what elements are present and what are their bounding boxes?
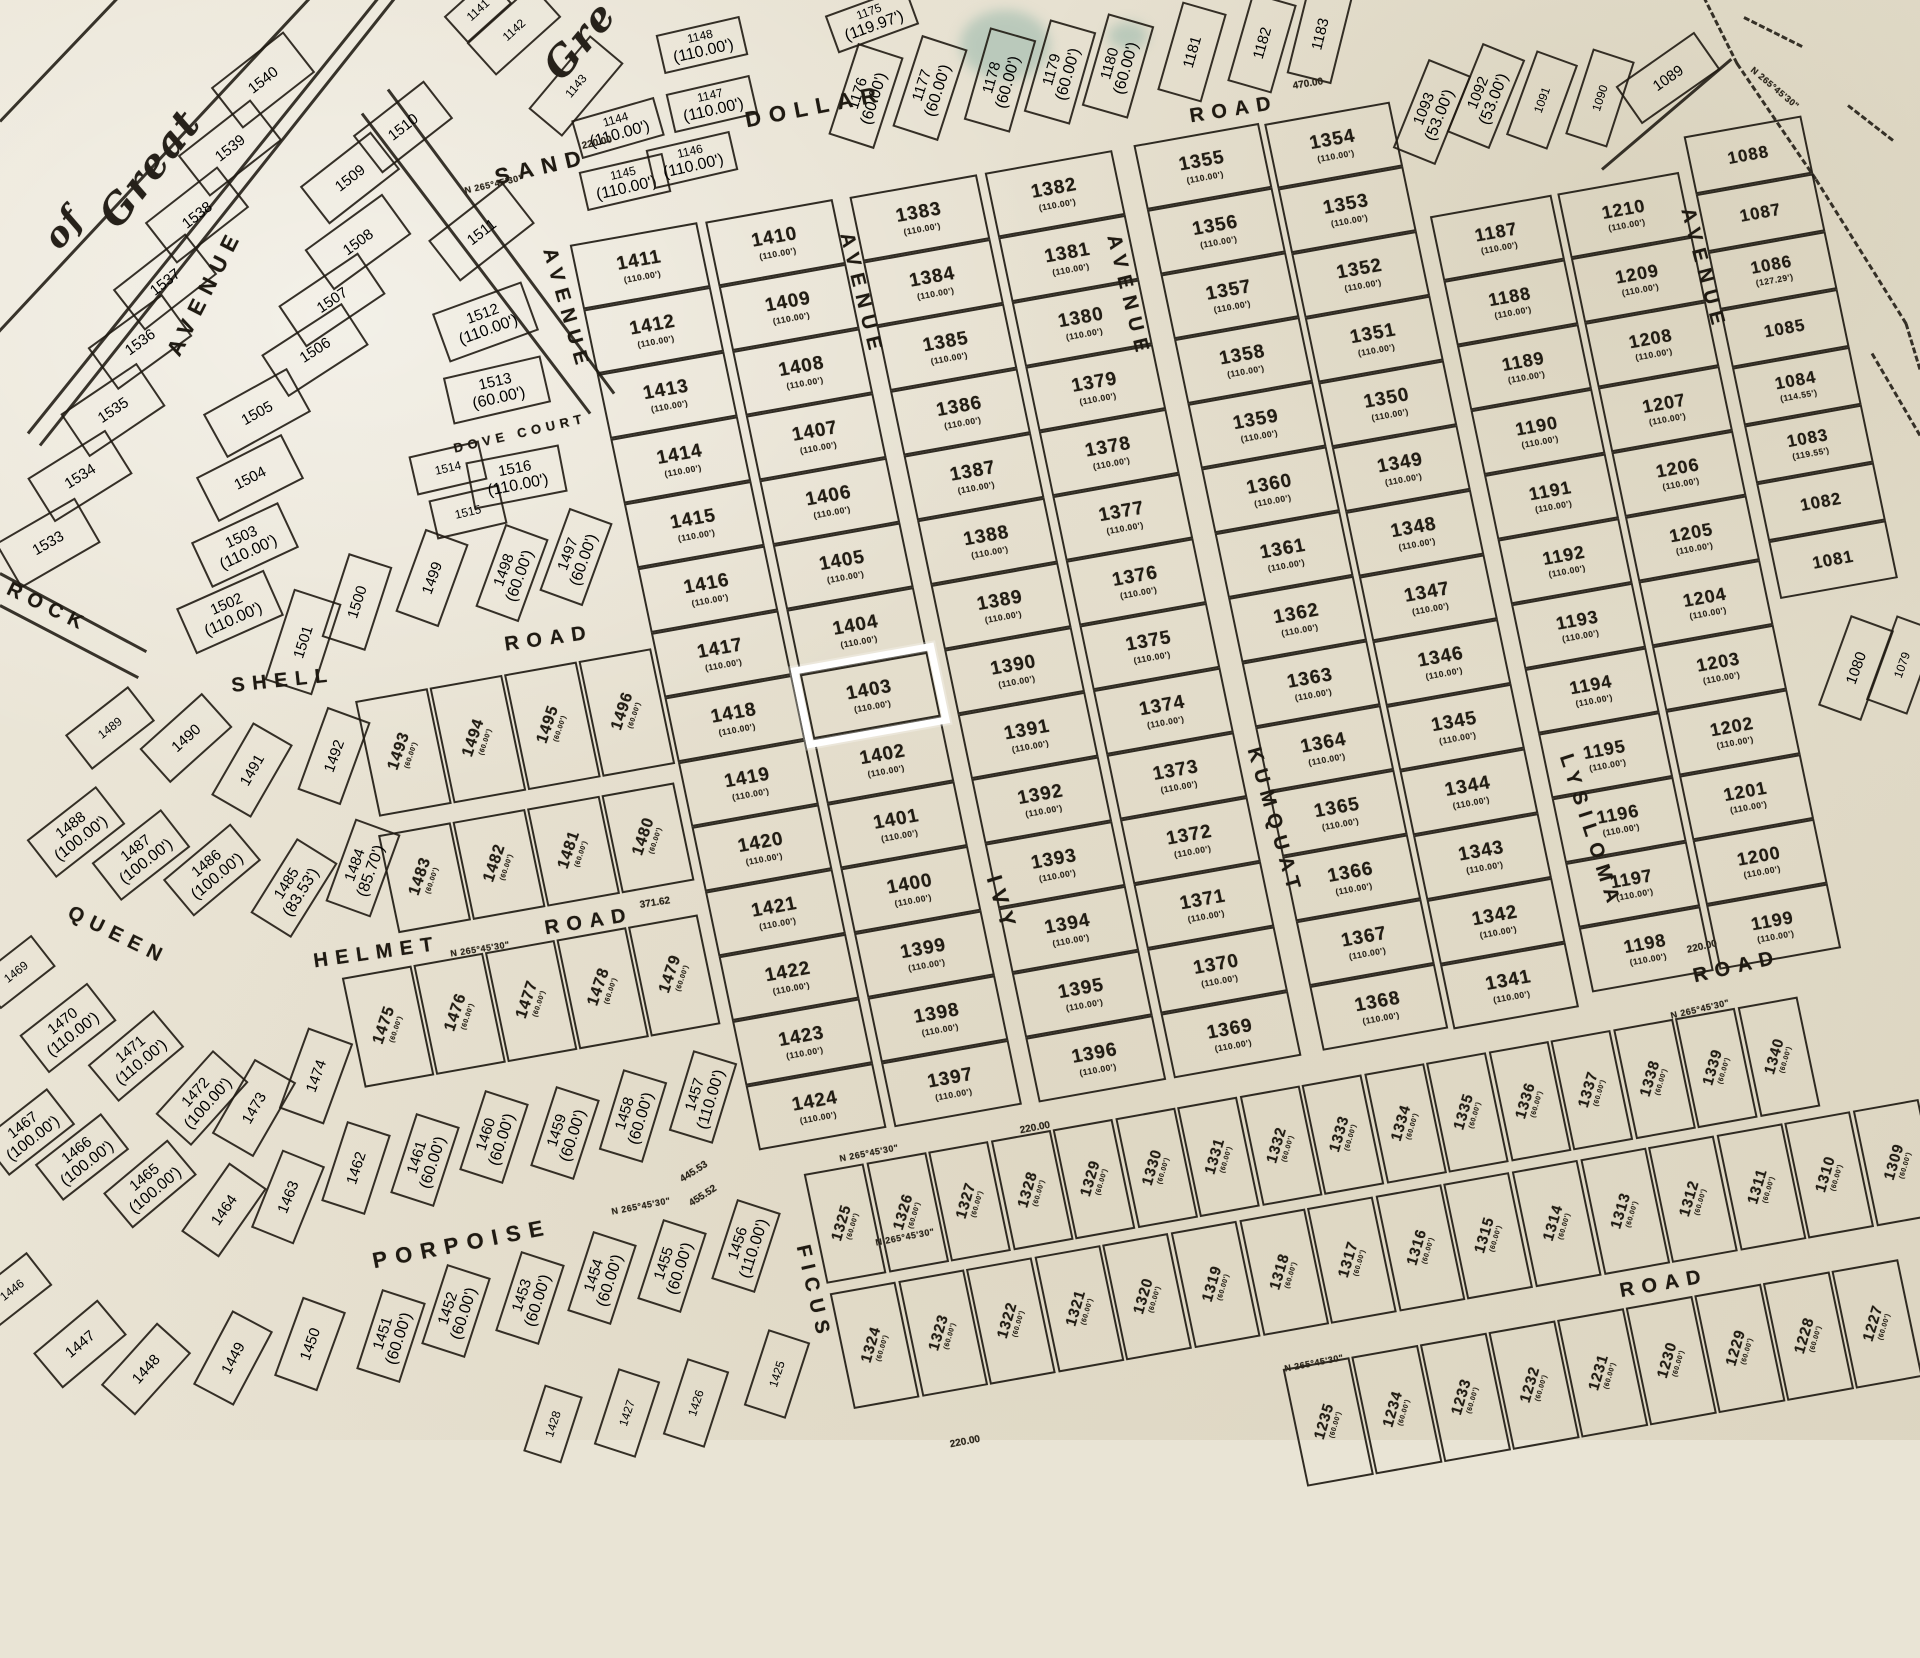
lot-number: 1469 — [1, 958, 31, 985]
lot-number: 1489 — [95, 714, 125, 741]
lot-number: 1537 — [147, 265, 184, 299]
lot-number: 1536 — [122, 325, 159, 358]
lot-number: 1449 — [218, 1339, 249, 1376]
lot-number: 1448 — [129, 1351, 164, 1387]
lot-number: 1463 — [274, 1178, 302, 1215]
lot-number: 1181 — [1179, 34, 1204, 70]
lot-number: 1473 — [238, 1089, 269, 1126]
lot-number: 1462 — [343, 1150, 369, 1187]
lot-number: 1450 — [296, 1325, 323, 1362]
lot-number: 1089 — [1649, 61, 1686, 94]
lot-number: 1505 — [238, 397, 275, 428]
lot-number: 1501 — [290, 624, 316, 661]
lot-number: 1183 — [1308, 16, 1332, 51]
lot-number: 1085 — [1762, 316, 1806, 340]
lot-number: 1447 — [62, 1327, 98, 1361]
lot-number: 1510 — [385, 110, 422, 144]
lot-number: 1088 — [1726, 143, 1770, 167]
lot-number: 1534 — [61, 460, 98, 492]
lot-number: 1142 — [500, 16, 529, 44]
lot-number: 1533 — [29, 527, 66, 558]
lot-number: 1090 — [1589, 83, 1611, 113]
lot-number: 1511 — [463, 215, 499, 248]
lot-number: 1535 — [94, 394, 131, 427]
lot-number: 1141 — [464, 0, 493, 24]
lot-number: 1504 — [231, 463, 268, 493]
lot-number: 1428 — [542, 1409, 564, 1439]
lot-number: 1540 — [245, 63, 282, 97]
lot-number: 1082 — [1799, 490, 1843, 514]
lot-number: 1446 — [0, 1276, 27, 1303]
lot-number: 1079 — [1891, 650, 1913, 680]
lot-number: 1508 — [340, 225, 377, 258]
lot-number: 1538 — [179, 198, 216, 232]
lot-number: 1499 — [418, 559, 445, 596]
lot-number: 1492 — [320, 737, 347, 774]
lot-number: 1474 — [302, 1057, 329, 1094]
lot-number: 1087 — [1738, 201, 1782, 225]
lot-number: 1464 — [207, 1191, 240, 1228]
lot-number: 1426 — [685, 1388, 707, 1418]
lot-number: 1081 — [1811, 548, 1855, 572]
lot-number: 1080 — [1842, 649, 1869, 686]
lot-number: 1500 — [344, 584, 370, 621]
lot-number: 1509 — [332, 161, 369, 195]
lot-number: 1539 — [212, 131, 249, 165]
lot-number: 1425 — [766, 1359, 788, 1389]
lot-number: 1490 — [168, 721, 204, 756]
lot-number: 1514 — [433, 458, 462, 478]
lot-number: 1182 — [1249, 25, 1274, 61]
lot-number: 1491 — [236, 751, 267, 788]
lot-number: 1091 — [1531, 85, 1553, 115]
lot-number: 1427 — [616, 1398, 638, 1428]
